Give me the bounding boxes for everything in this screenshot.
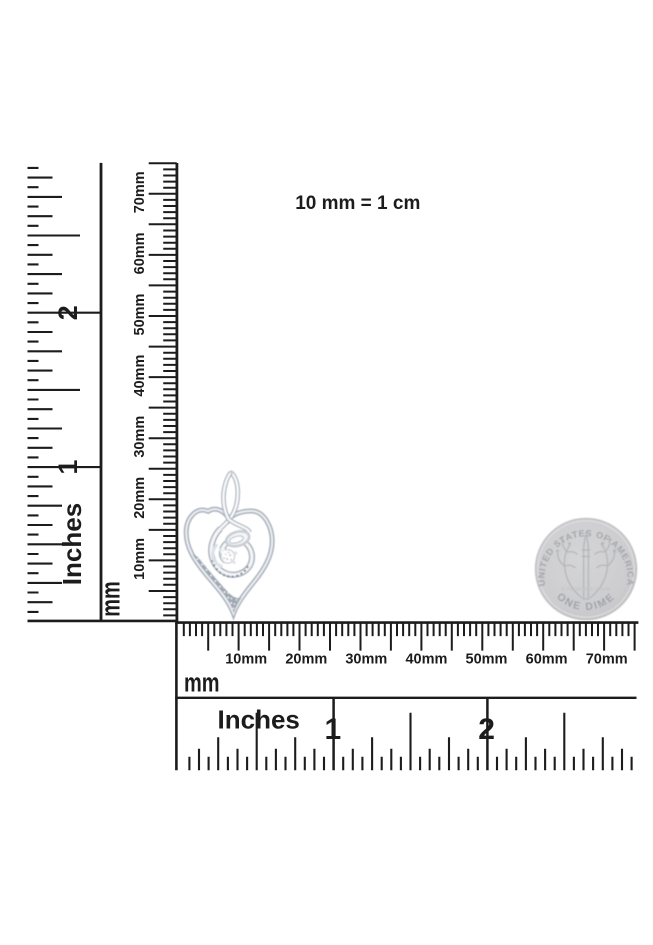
svg-text:10 mm = 1 cm: 10 mm = 1 cm <box>295 193 420 214</box>
svg-text:Inches: Inches <box>57 503 87 585</box>
svg-text:50mm: 50mm <box>466 652 508 668</box>
svg-text:60mm: 60mm <box>132 232 148 274</box>
svg-text:1: 1 <box>324 713 341 746</box>
svg-text:mm: mm <box>96 581 127 617</box>
svg-text:40mm: 40mm <box>405 652 447 668</box>
svg-text:2: 2 <box>478 713 495 746</box>
svg-text:1: 1 <box>53 460 83 475</box>
svg-text:50mm: 50mm <box>132 294 148 336</box>
svg-text:20mm: 20mm <box>132 477 148 519</box>
svg-text:10mm: 10mm <box>225 652 267 668</box>
svg-text:40mm: 40mm <box>132 355 148 397</box>
svg-text:30mm: 30mm <box>132 416 148 458</box>
svg-text:20mm: 20mm <box>285 652 327 668</box>
svg-text:60mm: 60mm <box>526 652 568 668</box>
svg-text:70mm: 70mm <box>586 652 628 668</box>
svg-text:10mm: 10mm <box>132 538 148 580</box>
svg-text:2: 2 <box>53 305 83 320</box>
svg-text:30mm: 30mm <box>345 652 387 668</box>
svg-text:mm: mm <box>184 668 220 699</box>
svg-text:Inches: Inches <box>218 705 300 735</box>
svg-text:·E·PLURIBUS·UNUM·: ·E·PLURIBUS·UNUM· <box>560 587 613 592</box>
svg-text:70mm: 70mm <box>132 171 148 213</box>
